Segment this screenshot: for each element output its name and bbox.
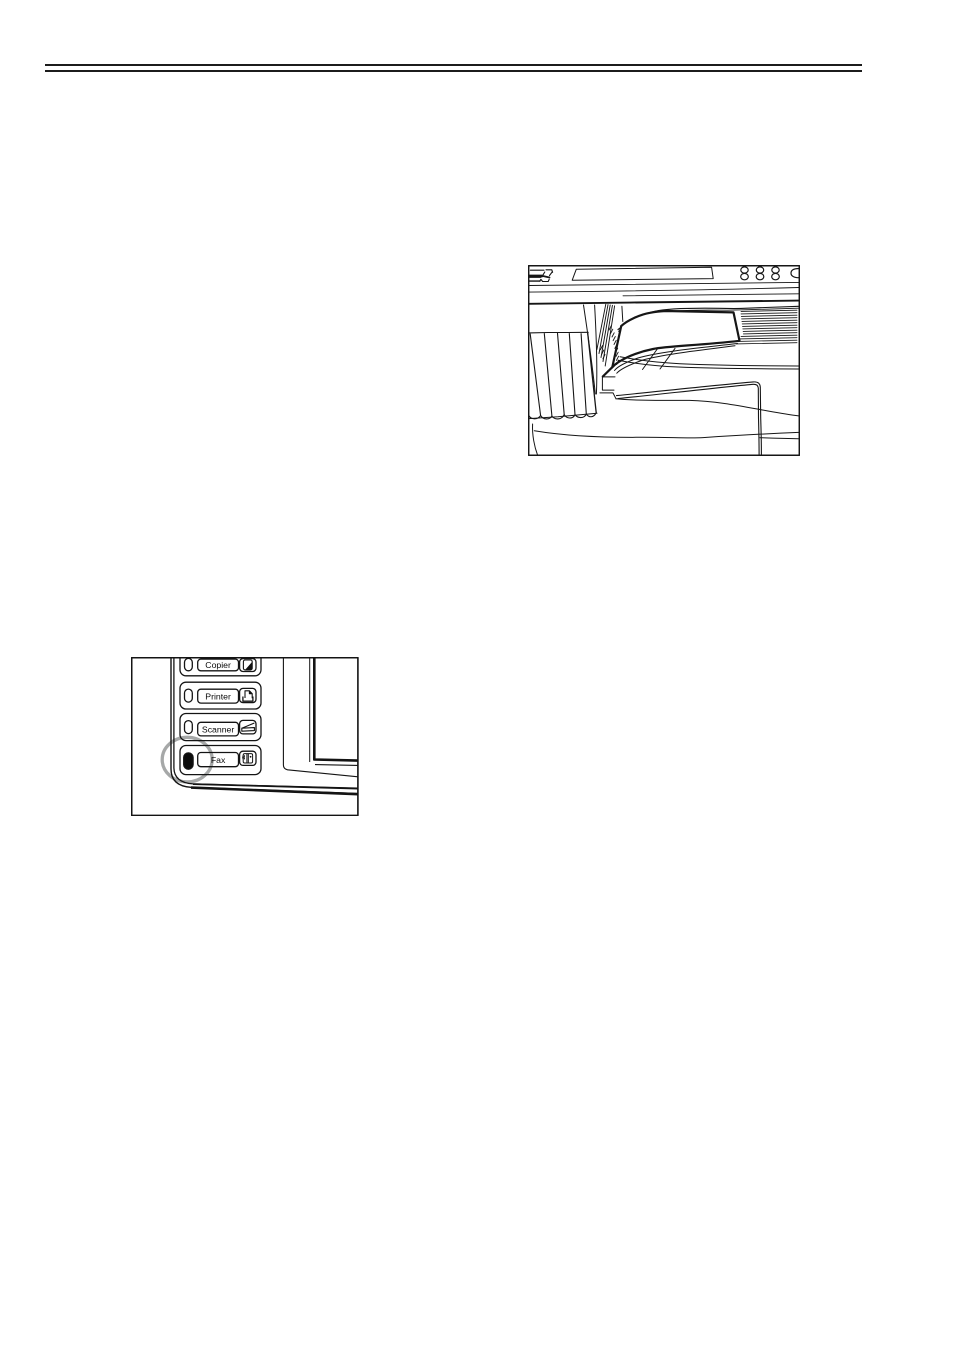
svg-text:Scanner: Scanner	[202, 724, 234, 734]
svg-text:Copier: Copier	[205, 660, 231, 670]
svg-text:Printer: Printer	[205, 692, 231, 702]
svg-text:Fax: Fax	[211, 755, 226, 765]
